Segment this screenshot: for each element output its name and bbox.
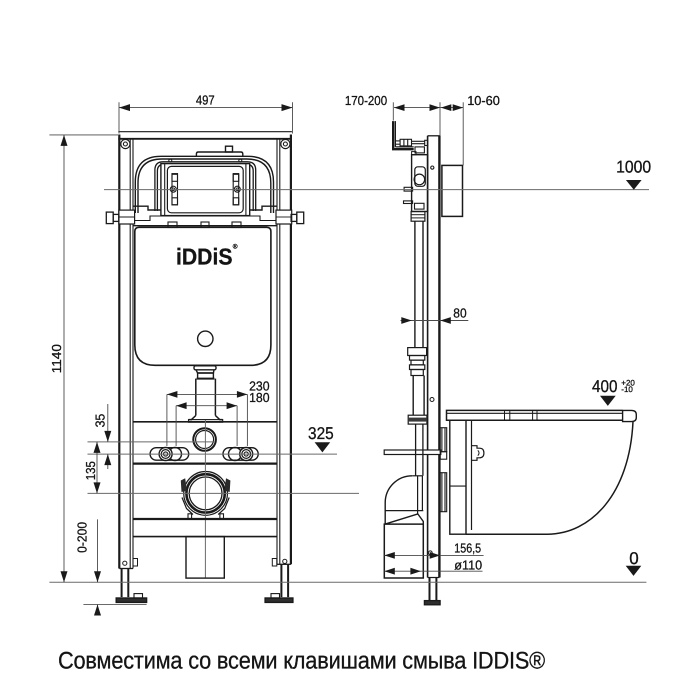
- svg-text:156,5: 156,5: [454, 541, 481, 556]
- svg-text:ø110: ø110: [454, 557, 482, 572]
- svg-text:1000: 1000: [616, 158, 651, 177]
- svg-text:180: 180: [249, 390, 270, 405]
- svg-text:iDDiS: iDDiS: [176, 243, 233, 269]
- svg-text:Совместима со всеми клавишами: Совместима со всеми клавишами смыва IDDI…: [58, 648, 545, 675]
- svg-text:-10: -10: [621, 385, 633, 394]
- svg-text:80: 80: [453, 306, 466, 321]
- svg-text:135: 135: [83, 461, 98, 480]
- svg-text:400: 400: [592, 377, 618, 396]
- svg-text:®: ®: [233, 244, 238, 251]
- svg-text:1140: 1140: [49, 344, 64, 373]
- svg-text:35: 35: [92, 414, 107, 428]
- svg-text:325: 325: [308, 424, 334, 443]
- svg-text:497: 497: [196, 92, 215, 107]
- svg-text:0: 0: [629, 549, 638, 568]
- svg-text:0-200: 0-200: [75, 522, 90, 553]
- svg-text:170-200: 170-200: [345, 93, 387, 108]
- svg-text:10-60: 10-60: [467, 93, 500, 108]
